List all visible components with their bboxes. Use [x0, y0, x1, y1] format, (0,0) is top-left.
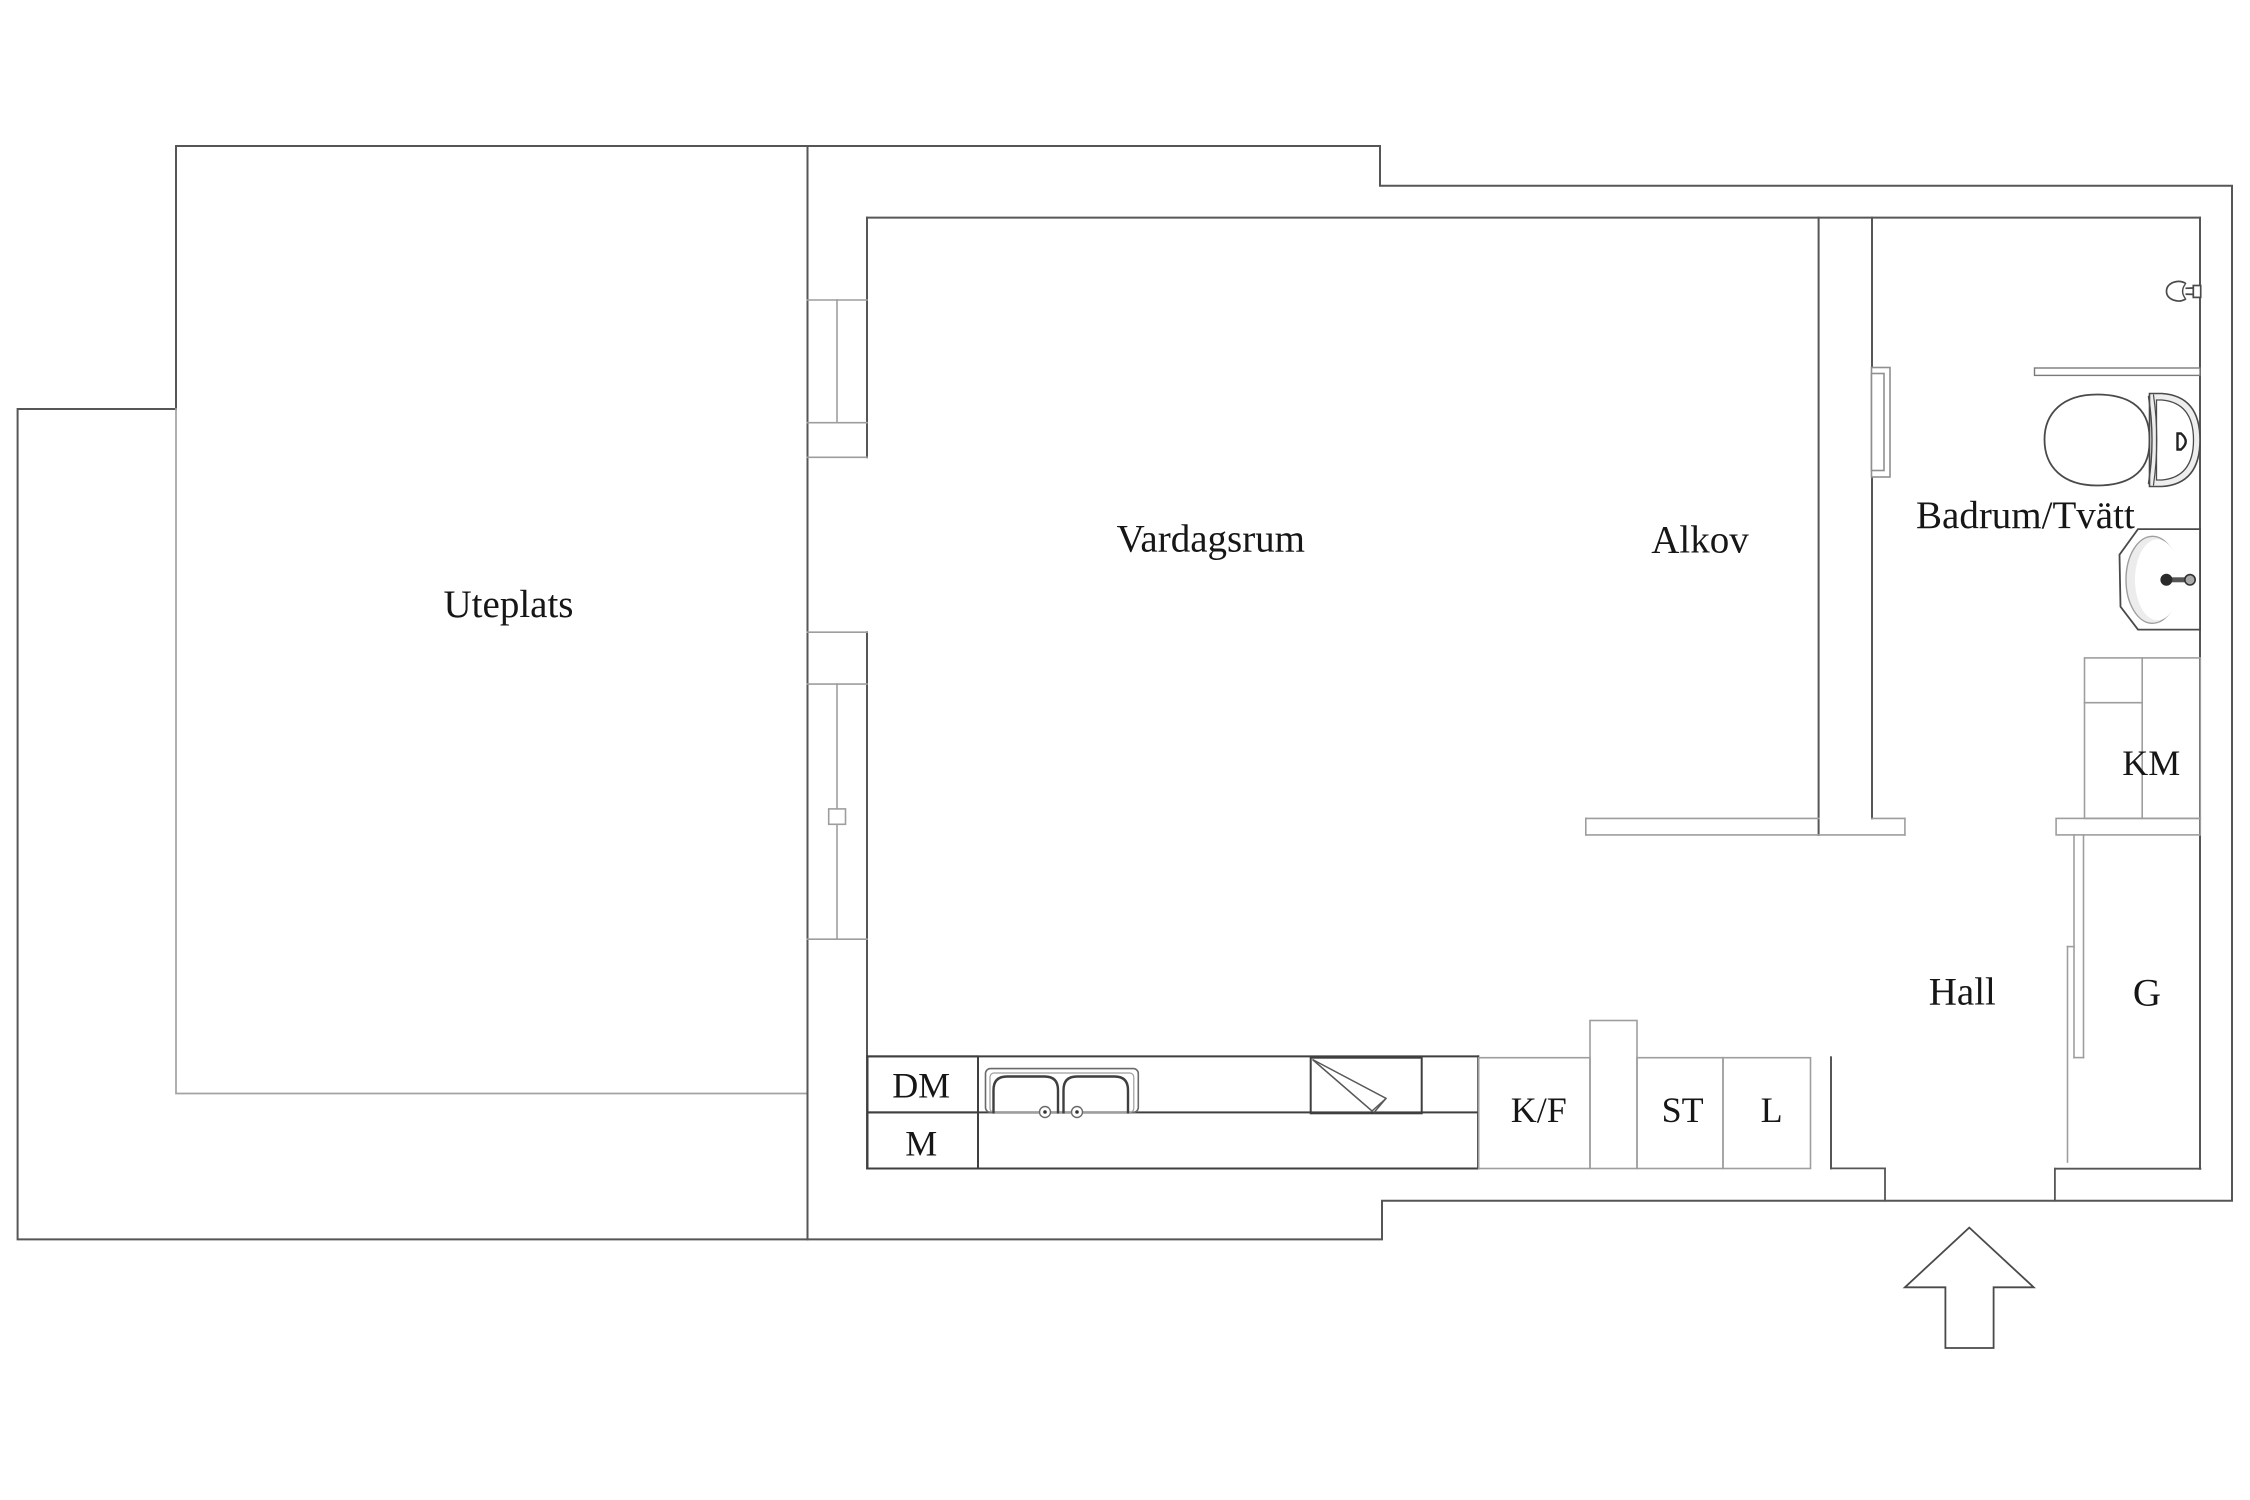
svg-text:ST: ST	[1662, 1090, 1704, 1130]
svg-text:Badrum/Tvätt: Badrum/Tvätt	[1916, 494, 2135, 537]
svg-text:KM: KM	[2122, 743, 2180, 783]
svg-text:Hall: Hall	[1929, 971, 1996, 1014]
svg-text:Vardagsrum: Vardagsrum	[1117, 518, 1305, 561]
svg-text:G: G	[2133, 971, 2161, 1014]
svg-text:L: L	[1761, 1090, 1783, 1130]
svg-text:DM: DM	[892, 1065, 950, 1105]
svg-text:K/F: K/F	[1511, 1090, 1567, 1130]
svg-text:Alkov: Alkov	[1651, 518, 1749, 561]
svg-text:Uteplats: Uteplats	[444, 583, 574, 626]
svg-text:M: M	[905, 1124, 937, 1164]
